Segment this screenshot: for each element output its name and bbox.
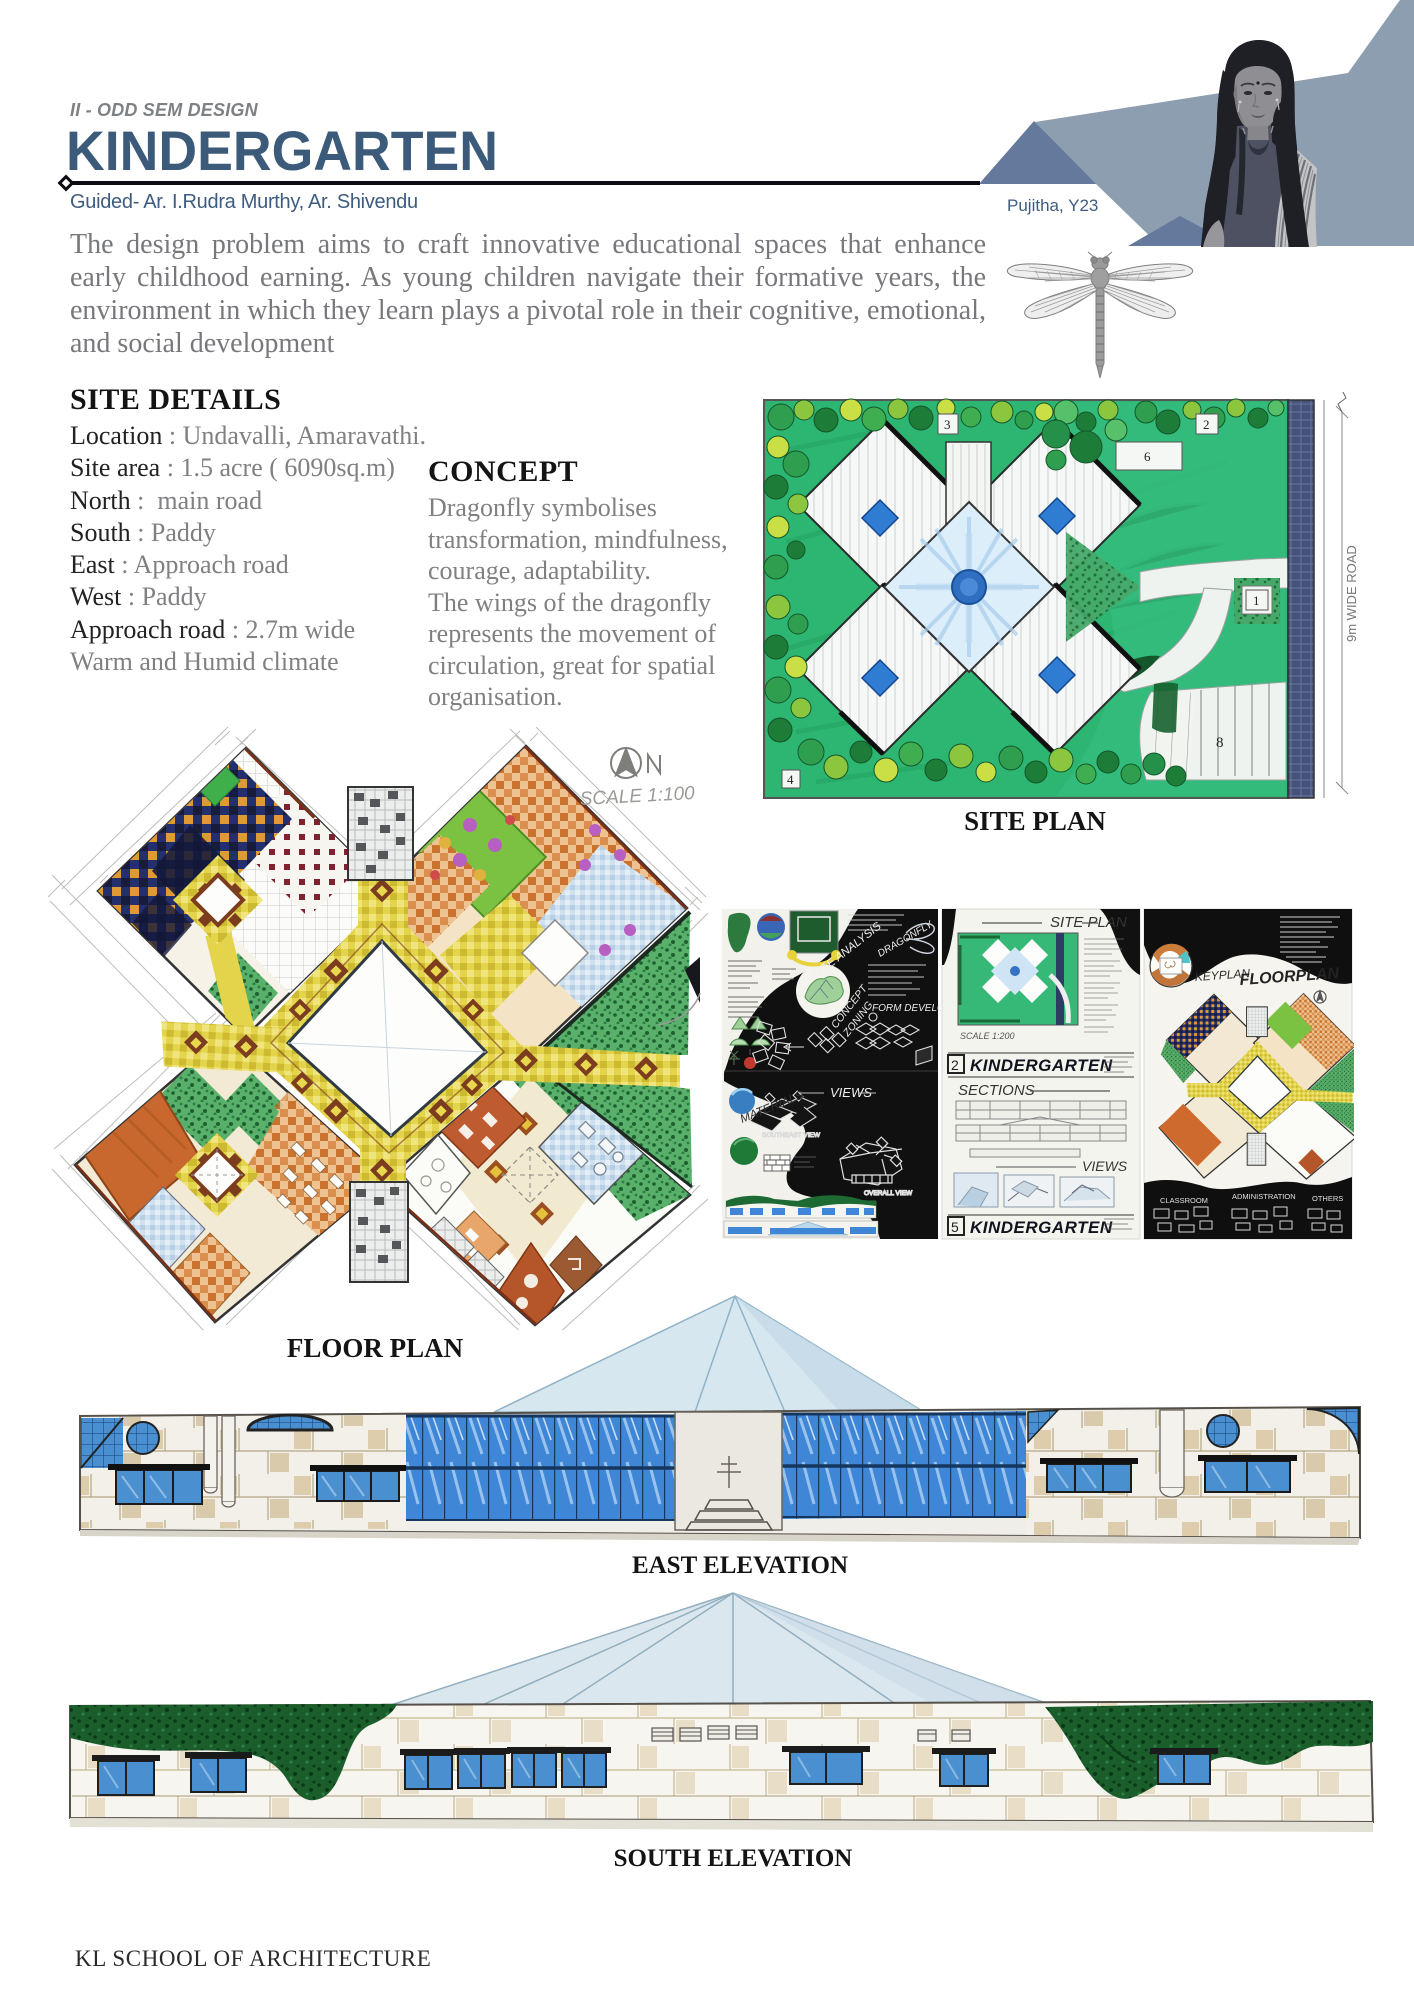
svg-text:SECTIONS: SECTIONS: [958, 1082, 1035, 1099]
svg-text:KINDERGARTEN: KINDERGARTEN: [66, 120, 498, 182]
svg-text:SOUTHEAST VIEW: SOUTHEAST VIEW: [762, 1132, 821, 1139]
svg-text:OTHERS: OTHERS: [1312, 1194, 1343, 1203]
svg-text:1: 1: [1253, 593, 1260, 608]
svg-text:9m WIDE ROAD: 9m WIDE ROAD: [1344, 545, 1359, 642]
svg-text:CLASSROOM: CLASSROOM: [1160, 1196, 1208, 1205]
svg-text:2: 2: [951, 1057, 959, 1073]
svg-text:VIEWS: VIEWS: [1082, 1158, 1128, 1174]
svg-text:OVERALL VIEW: OVERALL VIEW: [864, 1190, 913, 1197]
svg-text:KINDERGARTEN: KINDERGARTEN: [970, 1218, 1113, 1237]
svg-text:5: 5: [951, 1219, 959, 1235]
svg-text:4: 4: [787, 772, 794, 787]
svg-text:6: 6: [1144, 449, 1151, 464]
svg-text:3: 3: [944, 417, 951, 432]
svg-text:ADMINISTRATION: ADMINISTRATION: [1232, 1192, 1296, 1201]
svg-text:2: 2: [1203, 417, 1210, 432]
svg-text:KINDERGARTEN: KINDERGARTEN: [970, 1056, 1113, 1075]
svg-text:SCALE 1:200: SCALE 1:200: [960, 1031, 1015, 1041]
svg-text:8: 8: [1216, 735, 1224, 751]
